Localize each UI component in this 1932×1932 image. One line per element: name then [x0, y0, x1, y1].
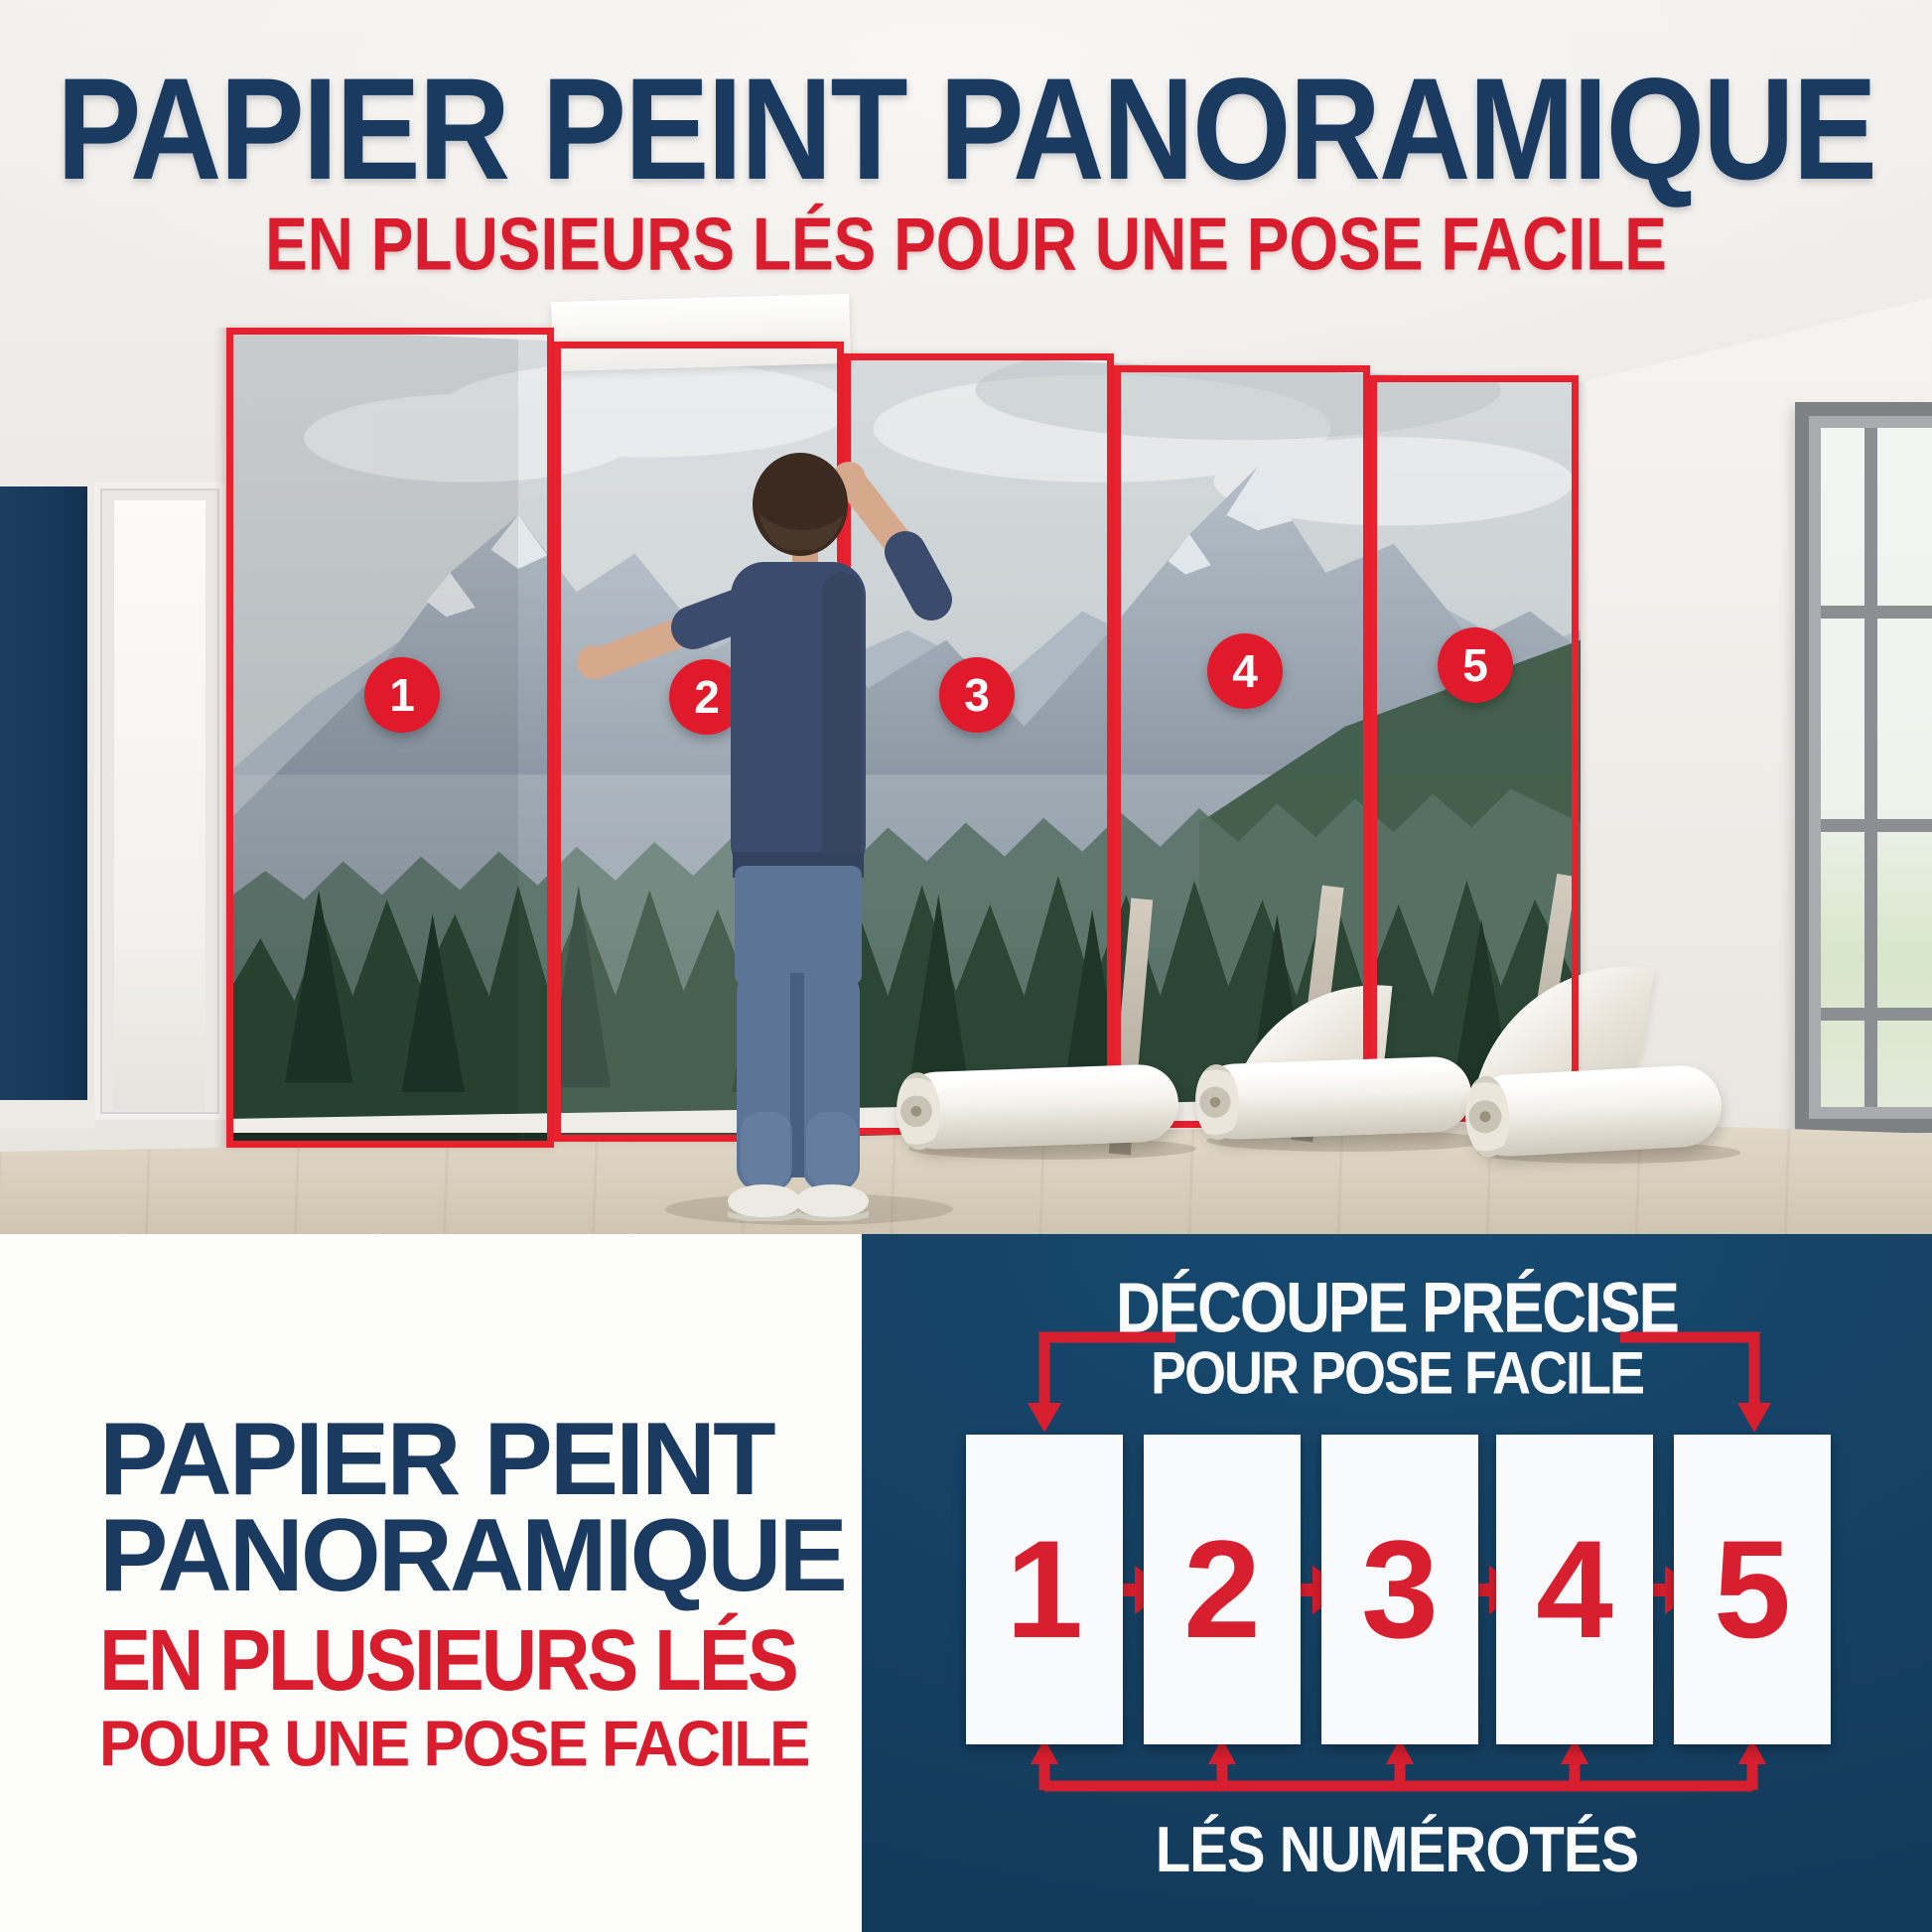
door-opening: [94, 483, 225, 1120]
accent-wall: [0, 486, 87, 1102]
diagram-strip-5: 5: [1674, 1435, 1831, 1744]
tshirt-shade: [822, 572, 862, 866]
jeans-hips: [735, 866, 862, 985]
jeans-seam: [790, 973, 804, 1177]
diagram-strip-3: 3: [1321, 1435, 1478, 1744]
page-title: PAPIER PEINT PANORAMIQUE: [0, 58, 1932, 203]
diagram-panel: DÉCOUPE PRÉCISE POUR POSE FACILE: [862, 1234, 1932, 1932]
sneaker: [795, 1184, 869, 1218]
diagram-title-line1: DÉCOUPE PRÉCISE: [862, 1274, 1932, 1344]
wallpaper-strip-outline-1: [226, 328, 554, 1148]
strip-number: 4: [1232, 644, 1258, 698]
diagram-strip-number: 3: [1361, 1520, 1439, 1659]
diagram-strip-2: 2: [1144, 1435, 1301, 1744]
wall-corner-shadow: [213, 328, 226, 1148]
room-photo: PAPIER PEINT PANORAMIQUE EN PLUSIEURS LÉ…: [0, 0, 1932, 1234]
strip-number: 5: [1462, 638, 1488, 692]
sneaker: [728, 1184, 801, 1218]
diagram-strip-number: 4: [1536, 1520, 1613, 1659]
wallpaper-roll: [1196, 1055, 1472, 1141]
diagram-title-line2: POUR POSE FACILE: [862, 1343, 1932, 1403]
door-light: [114, 500, 206, 1110]
window: [1795, 402, 1932, 1133]
window-mullion-horizontal: [1821, 819, 1932, 832]
installer-figure: [536, 417, 1052, 1221]
strip-number-badge-5: 5: [1438, 627, 1513, 703]
jeans-fade: [741, 1112, 792, 1187]
baseboard: [0, 1100, 95, 1130]
caption-subtitle-line1: EN PLUSIEURS LÉS: [99, 1616, 796, 1703]
up-arrow-bracket: [1044, 1762, 1752, 1790]
down-arrow-heads: [1028, 1403, 1771, 1433]
wallpaper-strip-outline-5: [1370, 375, 1579, 1122]
caption-title-line2: PANORAMIQUE: [99, 1504, 845, 1607]
installer-figure-art: [536, 417, 1052, 1221]
caption-subtitle-line2: POUR UNE POSE FACILE: [99, 1713, 808, 1777]
diagram-caption: LÉS NUMÉROTÉS: [862, 1818, 1932, 1882]
bottom-left-caption-panel: PAPIER PEINT PANORAMIQUE EN PLUSIEURS LÉ…: [0, 1234, 862, 1932]
window-mullion-horizontal: [1821, 606, 1932, 619]
diagram-strip-number: 5: [1714, 1520, 1791, 1659]
diagram-strip-number: 2: [1183, 1520, 1261, 1659]
strip-number: 1: [389, 668, 415, 722]
wallpaper-roll: [1465, 1063, 1724, 1158]
diagram-strip-1: 1: [966, 1435, 1123, 1744]
poster: PAPIER PEINT PANORAMIQUE EN PLUSIEURS LÉ…: [0, 0, 1932, 1932]
diagram-strip-4: 4: [1496, 1435, 1653, 1744]
diagram-strip-number: 1: [1006, 1520, 1083, 1659]
window-mullion-vertical: [1864, 428, 1877, 1107]
arm-right-extended: [577, 608, 747, 679]
page-subtitle: EN PLUSIEURS LÉS POUR UNE POSE FACILE: [0, 207, 1932, 282]
caption-title-line1: PAPIER PEINT: [99, 1408, 773, 1511]
window-mullion-horizontal: [1821, 1008, 1932, 1021]
strip-number-badge-4: 4: [1207, 633, 1283, 709]
jeans-fade: [806, 1112, 858, 1187]
strip-number-badge-1: 1: [364, 657, 440, 733]
wallpaper-strip-outline-4: [1114, 365, 1370, 1128]
